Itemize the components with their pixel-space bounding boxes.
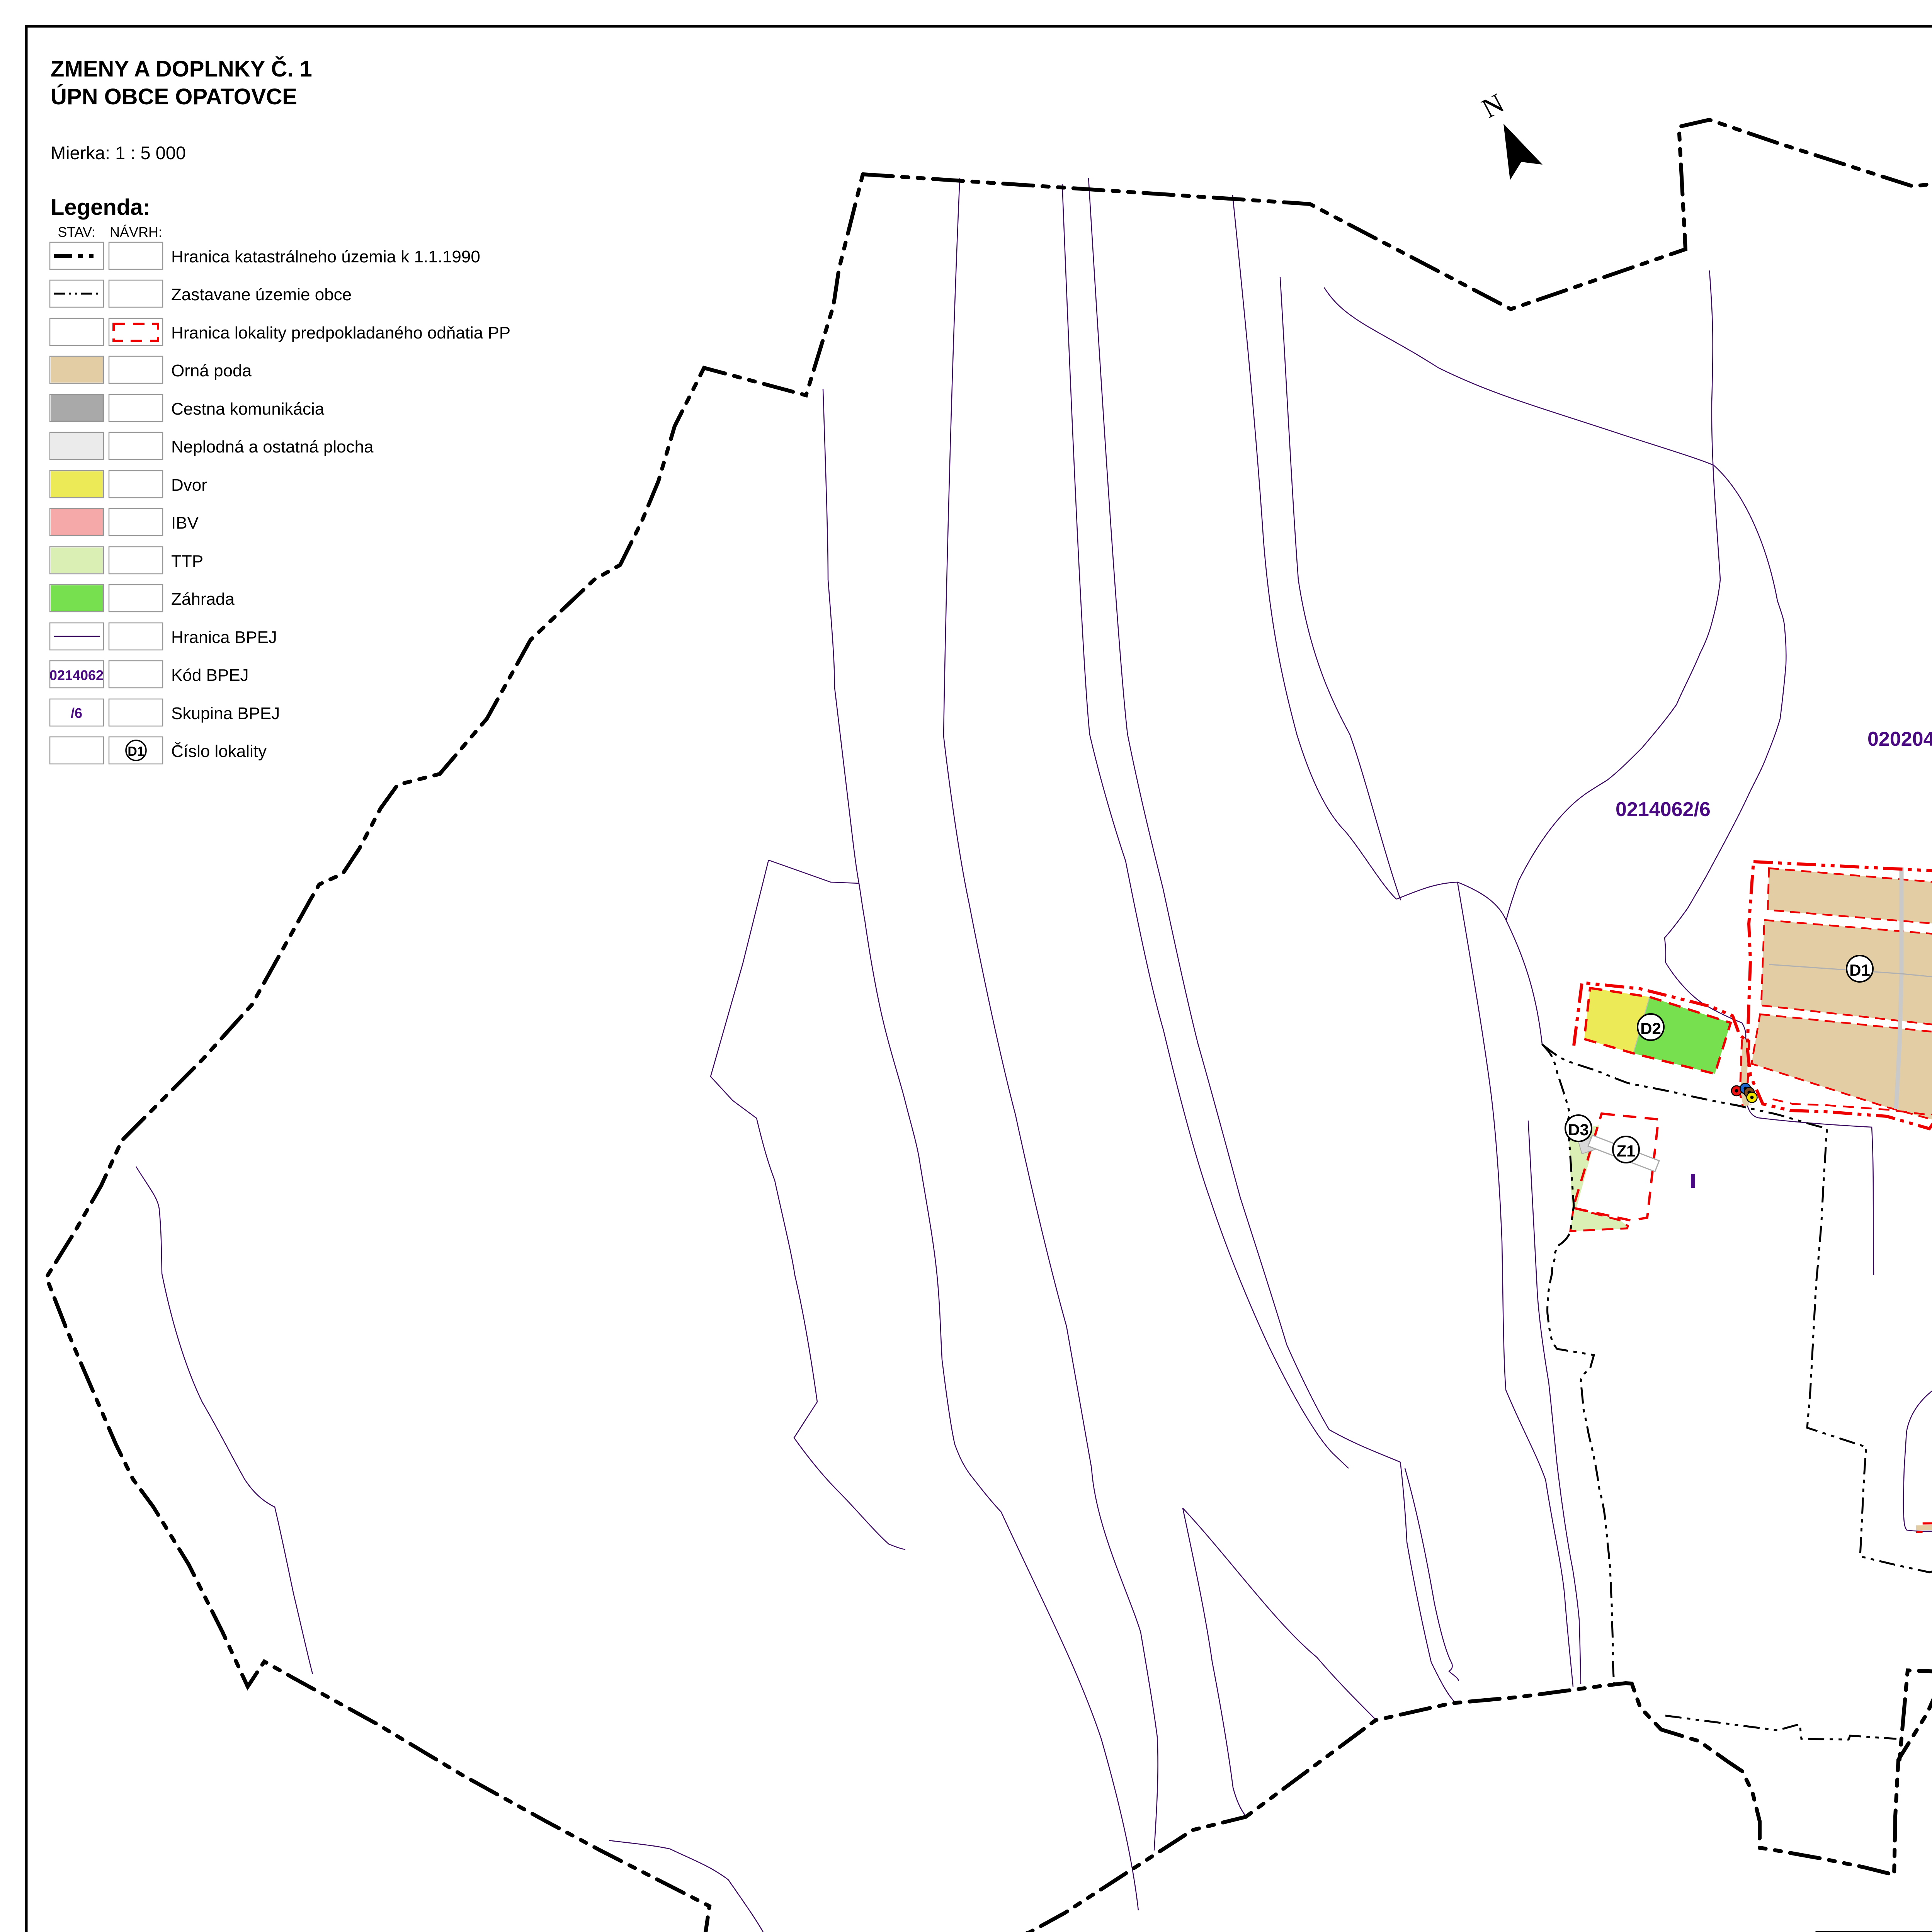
svg-text:Záhrada: Záhrada (171, 590, 235, 609)
svg-text:0214062/6: 0214062/6 (1616, 798, 1711, 821)
svg-text:D1: D1 (1849, 961, 1870, 979)
svg-text:Neplodná a ostatná plocha: Neplodná a ostatná plocha (171, 437, 374, 456)
svg-text:NÁVRH:: NÁVRH: (110, 224, 162, 240)
svg-text:TTP: TTP (171, 552, 203, 571)
svg-text:STAV:: STAV: (58, 224, 95, 240)
svg-text:ZMENY A DOPLNKY Č. 1: ZMENY A DOPLNKY Č. 1 (51, 56, 312, 82)
svg-text:/6: /6 (71, 705, 82, 721)
svg-text:Hranica lokality predpokladané: Hranica lokality predpokladaného odňatia… (171, 323, 510, 342)
svg-text:Orná poda: Orná poda (171, 361, 252, 380)
svg-text:Z1: Z1 (1616, 1142, 1635, 1160)
svg-text:Skupina BPEJ: Skupina BPEJ (171, 704, 280, 723)
svg-text:D1: D1 (128, 744, 144, 759)
svg-text:Číslo lokality: Číslo lokality (171, 742, 267, 761)
svg-text:Kód BPEJ: Kód BPEJ (171, 666, 249, 685)
svg-text:Mierka: 1 : 5 000: Mierka: 1 : 5 000 (51, 143, 186, 163)
svg-text:Zastavane územie obce: Zastavane územie obce (171, 285, 352, 304)
svg-text:Hranica BPEJ: Hranica BPEJ (171, 628, 277, 647)
svg-text:D3: D3 (1568, 1121, 1589, 1139)
svg-text:D2: D2 (1640, 1019, 1661, 1037)
svg-text:0202042/5: 0202042/5 (1867, 728, 1932, 750)
svg-text:0214062: 0214062 (49, 667, 104, 683)
svg-text:Dvor: Dvor (171, 476, 207, 495)
svg-text:Hranica katastrálneho územia k: Hranica katastrálneho územia k 1.1.1990 (171, 247, 480, 266)
svg-text:ÚPN OBCE OPATOVCE: ÚPN OBCE OPATOVCE (51, 84, 297, 109)
svg-text:Cestna komunikácia: Cestna komunikácia (171, 400, 325, 418)
svg-text:IBV: IBV (171, 514, 199, 532)
svg-text:Legenda:: Legenda: (51, 195, 150, 220)
